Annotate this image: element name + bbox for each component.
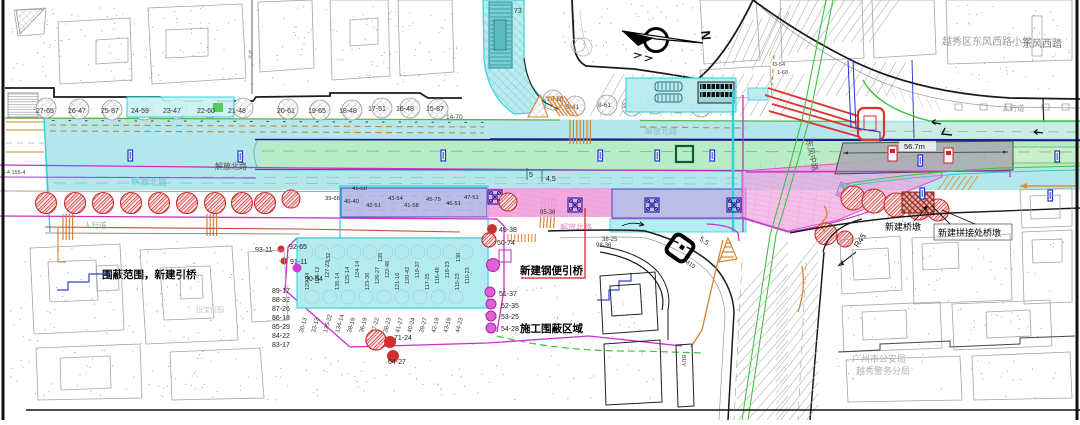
svg-text:3-54: 3-54 [774,62,785,68]
svg-text:人行道: 人行道 [1002,103,1025,113]
svg-text:27-65: 27-65 [36,108,54,115]
svg-text:89-17: 89-17 [272,288,290,295]
svg-text:1-68: 1-68 [777,70,788,76]
svg-text:90-54: 90-54 [305,276,323,283]
svg-text:119-37: 119-37 [415,261,421,278]
svg-text:85-29: 85-29 [272,324,290,331]
svg-text:17-51: 17-51 [368,106,386,113]
svg-text:46-51: 46-51 [446,201,461,207]
svg-text:40-40: 40-40 [344,199,359,205]
svg-text:52-35: 52-35 [501,303,519,310]
svg-text:73: 73 [514,8,522,15]
svg-text:120-42: 120-42 [405,267,411,284]
svg-text:19-65: 19-65 [308,108,326,115]
svg-text:39-66: 39-66 [325,196,340,202]
svg-text:116-48: 116-48 [435,267,441,284]
svg-text:解放北路: 解放北路 [131,175,168,188]
svg-text:132: 132 [326,253,332,262]
svg-text:22-60: 22-60 [197,108,215,115]
svg-text:26-47: 26-47 [68,108,86,115]
svg-text:24-59: 24-59 [131,108,149,115]
svg-text:14-70: 14-70 [446,114,463,121]
svg-text:45-75: 45-75 [426,197,441,203]
svg-text:95-36: 95-36 [540,210,556,216]
svg-text:53-25: 53-25 [501,314,519,321]
svg-text:115-23: 115-23 [455,273,461,290]
svg-text:118-23: 118-23 [445,261,451,278]
svg-text:43-54: 43-54 [388,196,404,202]
svg-text:20-61: 20-61 [277,108,295,115]
svg-text:8-61: 8-61 [598,102,611,109]
svg-text:110-23: 110-23 [465,267,471,284]
svg-text:5: 5 [529,172,533,179]
svg-text:人行道: 人行道 [84,220,107,230]
svg-text:41-50: 41-50 [352,186,367,192]
svg-text:16-48: 16-48 [396,106,414,113]
svg-text:124-14: 124-14 [355,261,361,278]
svg-text:25-87: 25-87 [101,108,119,115]
svg-text:47-51: 47-51 [464,195,479,201]
svg-text:4,5: 4,5 [546,176,556,183]
svg-text:15-87: 15-87 [426,106,444,113]
svg-text:50-74: 50-74 [497,240,515,247]
svg-text:新建钢便引桥: 新建钢便引桥 [520,264,583,277]
svg-text:解放北路: 解放北路 [645,126,677,136]
svg-text:56.7m: 56.7m [904,142,925,151]
svg-text:东风西踏: 东风西踏 [1022,37,1062,50]
svg-text:越秀区东风西路小学: 越秀区东风西路小学 [942,35,1032,48]
svg-text:125-14: 125-14 [345,267,351,284]
svg-text:广州市公安局: 广州市公安局 [852,353,906,364]
svg-text:恒宝街园: 恒宝街园 [196,305,224,314]
svg-text:83-17: 83-17 [272,342,290,349]
svg-text:49-38: 49-38 [499,227,517,234]
svg-text:施工围蔽区域: 施工围蔽区域 [520,322,583,335]
svg-text:122-46: 122-46 [385,261,391,278]
svg-text:121-16: 121-16 [395,273,401,290]
svg-text:42-51: 42-51 [366,203,381,209]
svg-text:41-58: 41-58 [404,203,419,209]
svg-text:21-48: 21-48 [228,108,246,115]
svg-text:117-25: 117-25 [425,273,431,290]
svg-text:解放: 解放 [247,50,254,59]
svg-text:54-28: 54-28 [501,326,519,333]
svg-text:51-37: 51-37 [499,291,517,298]
svg-text:新建桥墩: 新建桥墩 [885,221,921,232]
svg-text:71-24: 71-24 [394,335,412,342]
svg-text:126-27: 126-27 [375,267,381,284]
svg-text:越秀警务分局: 越秀警务分局 [856,365,910,376]
svg-text:135: 135 [378,253,384,262]
svg-text:6-4 155-4: 6-4 155-4 [2,170,26,176]
svg-text:64-27: 64-27 [388,359,406,366]
svg-text:84-22: 84-22 [272,333,290,340]
svg-text:98-36: 98-36 [596,243,612,249]
svg-text:N: N [698,30,714,41]
svg-text:127-22: 127-22 [325,261,331,278]
svg-text:解放北路: 解放北路 [215,161,247,171]
svg-text:23-47: 23-47 [163,108,181,115]
svg-text:18-48: 18-48 [339,108,357,115]
svg-text:135-14: 135-14 [335,273,341,290]
svg-text:130: 130 [456,253,462,262]
svg-text:38-25: 38-25 [602,237,618,243]
svg-text:围蔽范围，新建引桥: 围蔽范围，新建引桥 [102,268,197,281]
svg-text:123-36: 123-36 [365,273,371,290]
svg-text:92-65: 92-65 [289,244,307,251]
svg-text:BUY: BUY [680,355,686,367]
